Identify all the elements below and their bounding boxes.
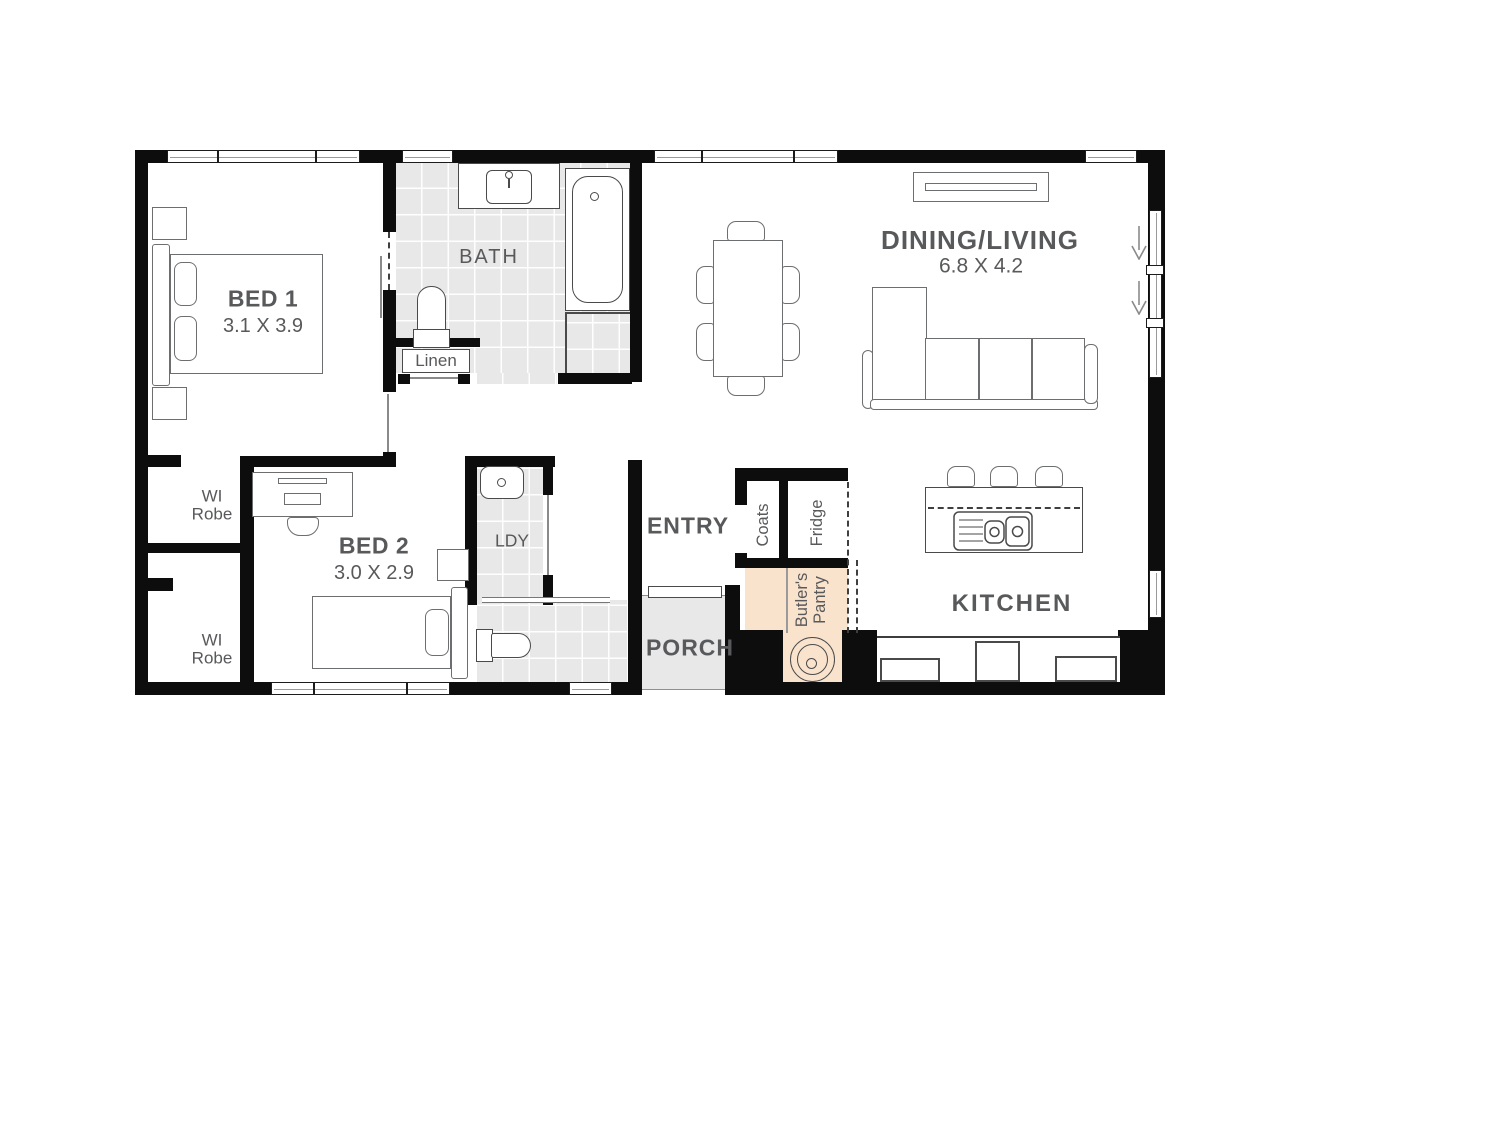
sofa-arm-right: [1084, 344, 1098, 404]
bath-tap-stem: [508, 179, 510, 188]
linen-door-jamb-left: [398, 374, 410, 384]
bath-toilet-cistern: [413, 329, 450, 348]
wall-bed1-bottom: [135, 455, 181, 467]
room-label-kitchen: KITCHEN: [952, 591, 1073, 617]
island-overhang-dashed: [928, 507, 1080, 509]
wall-closet-divider: [779, 481, 788, 558]
room-label-wi-robe-2: WI Robe: [192, 632, 233, 669]
wi-robe-2-line2: Robe: [192, 649, 233, 668]
door-swing-arrow-1: [1130, 226, 1148, 260]
wall-bed2-top: [240, 456, 392, 467]
wall-closet-top: [735, 468, 848, 481]
sliding-door-junction-1: [1146, 265, 1164, 275]
bed2-side-table: [437, 549, 469, 581]
wall-bottom-east: [725, 682, 1165, 695]
kitchen-appliance-right: [1055, 656, 1117, 682]
kitchen-appliance-left: [880, 658, 940, 682]
bed2-desk-chair: [287, 517, 319, 536]
kitchen-stool-2: [990, 466, 1018, 487]
wall-ldy-right-upper: [543, 467, 553, 495]
window-bath: [402, 150, 453, 163]
dining-chair-bottom: [727, 376, 765, 396]
bed2-pillow: [425, 609, 449, 656]
window-dining-right: [1085, 150, 1137, 163]
room-label-linen: Linen: [415, 352, 457, 370]
room-label-butlers-pantry: Butler's Pantry: [794, 573, 830, 628]
closet-label-coats: Coats: [755, 503, 773, 546]
window-kitchen: [1149, 570, 1162, 618]
sofa-chaise: [872, 287, 927, 402]
bath-door-threshold: [477, 373, 557, 384]
wall-bed1-bath-mid: [383, 290, 396, 392]
wall-under-shower: [558, 373, 632, 384]
bath-door-dashed: [388, 232, 390, 290]
kitchen-stool-3: [1035, 466, 1063, 487]
dining-chair-top: [727, 221, 765, 241]
bed2-keyboard: [284, 493, 321, 505]
wall-bed1-bath-upper: [383, 163, 396, 232]
bed1-side-table-bottom: [152, 387, 187, 420]
room-label-bed2: BED 2: [339, 534, 409, 559]
wall-pantry-right-block: [842, 630, 877, 692]
window-bed2: [271, 682, 450, 695]
linen-door-jamb-right: [458, 374, 470, 384]
bed2-monitor: [278, 478, 327, 484]
bed1-door-leaf: [387, 394, 389, 452]
dining-chair-right-2: [782, 323, 800, 361]
bed2-headboard: [451, 587, 468, 679]
window-wc: [569, 682, 612, 695]
wall-bath-dining: [630, 163, 642, 382]
sofa-seats: [925, 338, 1085, 402]
room-label-dining-living: DINING/LIVING: [881, 226, 1079, 254]
room-label-bed1: BED 1: [228, 287, 298, 312]
pantry-bench-divider: [786, 568, 788, 633]
bath-door-leaf: [380, 256, 382, 318]
wc-slider-track: [482, 597, 610, 603]
butlers-pantry-line2: Pantry: [811, 576, 829, 624]
island-sink: [953, 511, 1033, 551]
closet-label-fridge: Fridge: [809, 500, 827, 547]
wall-pantry-left-block: [737, 630, 783, 692]
bed1-headboard: [152, 244, 170, 386]
ldy-cavity-slider: [547, 495, 549, 575]
kitchen-cooktop: [975, 641, 1020, 682]
dining-chair-right-1: [782, 266, 800, 304]
wall-robe2-stub: [135, 578, 173, 591]
bath-tap: [505, 171, 513, 179]
room-label-porch: PORCH: [646, 636, 734, 661]
coats-door-opening: [733, 505, 747, 553]
fridge-dashed-line: [847, 482, 849, 633]
room-dims-bed1: 3.1 X 3.9: [223, 316, 303, 338]
bed1-pillow-1: [174, 262, 197, 306]
bed1-pillow-2: [174, 316, 197, 361]
sliding-door-living: [1149, 210, 1162, 378]
laundry-tub-drain: [497, 478, 506, 487]
room-label-wi-robe-1: WI Robe: [192, 488, 233, 525]
dining-table: [713, 240, 783, 377]
window-bed1: [167, 150, 360, 163]
sofa-base: [870, 399, 1098, 410]
shower-base: [565, 312, 632, 377]
door-swing-arrow-2: [1130, 281, 1148, 315]
wall-ldy-left: [465, 456, 477, 605]
front-door-leaf: [648, 586, 722, 598]
wi-robe-2-line1: WI: [202, 631, 223, 650]
room-label-entry: ENTRY: [647, 514, 729, 539]
sliding-door-junction-2: [1146, 318, 1164, 328]
bathtub-drain: [590, 192, 599, 201]
floor-plan-canvas: BED 1 3.1 X 3.9 BATH Linen DINING/LIVING…: [0, 0, 1498, 1146]
pantry-sink-drain: [806, 658, 817, 669]
room-dims-dining-living: 6.8 X 4.2: [939, 256, 1023, 279]
bath-toilet-bowl: [417, 286, 446, 333]
wi-robe-1-line1: WI: [202, 487, 223, 506]
bed1-side-table-top: [152, 207, 187, 240]
pantry-dashed-line: [856, 560, 858, 633]
wi-robe-1-line2: Robe: [192, 505, 233, 524]
window-dining: [654, 150, 838, 163]
wall-closet-bottom: [735, 558, 848, 568]
wall-entry-west: [628, 460, 642, 695]
wall-robe-divider: [135, 543, 254, 553]
tv-screen: [925, 183, 1037, 191]
wall-kitchen-corner-pier: [1118, 630, 1165, 695]
wall-left: [135, 150, 148, 695]
butlers-pantry-line1: Butler's: [793, 573, 811, 628]
room-dims-bed2: 3.0 X 2.9: [334, 563, 414, 585]
wc-toilet-bowl: [491, 633, 531, 658]
room-label-ldy: LDY: [495, 532, 529, 551]
dining-chair-left-2: [696, 323, 714, 361]
room-label-bath: BATH: [459, 247, 519, 269]
dining-chair-left-1: [696, 266, 714, 304]
kitchen-stool-1: [947, 466, 975, 487]
linen-door-track: [410, 377, 458, 379]
